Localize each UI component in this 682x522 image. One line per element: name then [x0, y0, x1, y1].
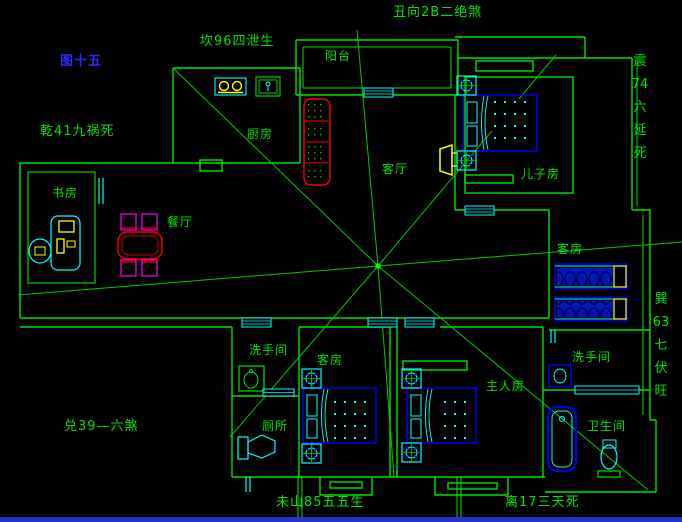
room-label-son-bedroom: 儿子房 — [521, 167, 560, 181]
room-label-guest-south: 客房 — [317, 353, 343, 367]
bed-master — [407, 388, 476, 443]
washbasin-west — [239, 366, 264, 391]
floorplan-canvas — [0, 0, 682, 522]
dining-chairs — [121, 214, 157, 276]
room-label-living: 客厅 — [382, 162, 408, 176]
bed-guest-east-1 — [555, 264, 627, 289]
sill-bath-divider — [575, 386, 639, 394]
room-label-master: 主人房 — [486, 379, 525, 393]
room-label-bathroom: 卫生间 — [587, 419, 626, 433]
compass-center-point — [376, 264, 381, 269]
kitchen-sink — [256, 77, 280, 96]
room-label-guest-east: 客房 — [557, 242, 583, 256]
annotation-north-top: 丑向2B二绝煞 — [393, 6, 482, 20]
sofa — [304, 99, 330, 185]
annotation-south-center: 未山85五五生 — [276, 496, 365, 510]
desk-chair — [29, 239, 51, 263]
lamp-symbol — [302, 369, 321, 388]
lamp-symbol — [457, 76, 476, 95]
room-label-dining: 餐厅 — [167, 215, 193, 229]
room-label-washroom-west: 洗手间 — [249, 343, 288, 357]
room-label-kitchen: 厨房 — [247, 127, 273, 141]
dining-table — [118, 232, 162, 259]
toilet-east — [598, 440, 620, 477]
computer-monitor — [59, 221, 74, 232]
desk — [51, 216, 80, 270]
bed-guest-south — [303, 388, 376, 443]
annotation-northwest: 乾41九祸死 — [40, 125, 115, 139]
computer-tower — [57, 239, 64, 253]
room-label-toilet: 厕所 — [262, 419, 288, 433]
room-label-washroom-east: 洗手间 — [572, 350, 611, 364]
bed-son — [463, 95, 537, 151]
bottom-blue-strip — [0, 517, 682, 522]
floorplan-screenshot: 丑向2B二绝煞 坎96四泄生 图十五 乾41九祸死 震 74 六 延 死 巽 6… — [0, 0, 682, 522]
bed-guest-east-2 — [555, 297, 627, 321]
toilet-west — [238, 435, 275, 459]
annotation-east: 震 74 六 延 死 — [629, 50, 651, 165]
sill-toilet-divider — [263, 389, 294, 396]
room-label-balcony: 阳台 — [325, 49, 351, 63]
bathtub — [548, 407, 576, 471]
annotation-northwest-top: 坎96四泄生 — [200, 35, 275, 49]
stove — [215, 78, 246, 95]
annotation-southeast: 巽 63 七 伏 旺 — [650, 288, 672, 403]
annotation-west: 兑39—六煞 — [64, 420, 139, 434]
lamp-symbol — [302, 444, 321, 463]
lamp-symbol — [402, 443, 421, 462]
lamp-symbol — [402, 369, 421, 388]
annotation-south-right: 离17三天死 — [505, 496, 580, 510]
room-label-study: 书房 — [52, 186, 78, 200]
figure-caption: 图十五 — [60, 55, 102, 69]
washbasin-east — [549, 365, 571, 387]
keyboard — [67, 241, 75, 247]
